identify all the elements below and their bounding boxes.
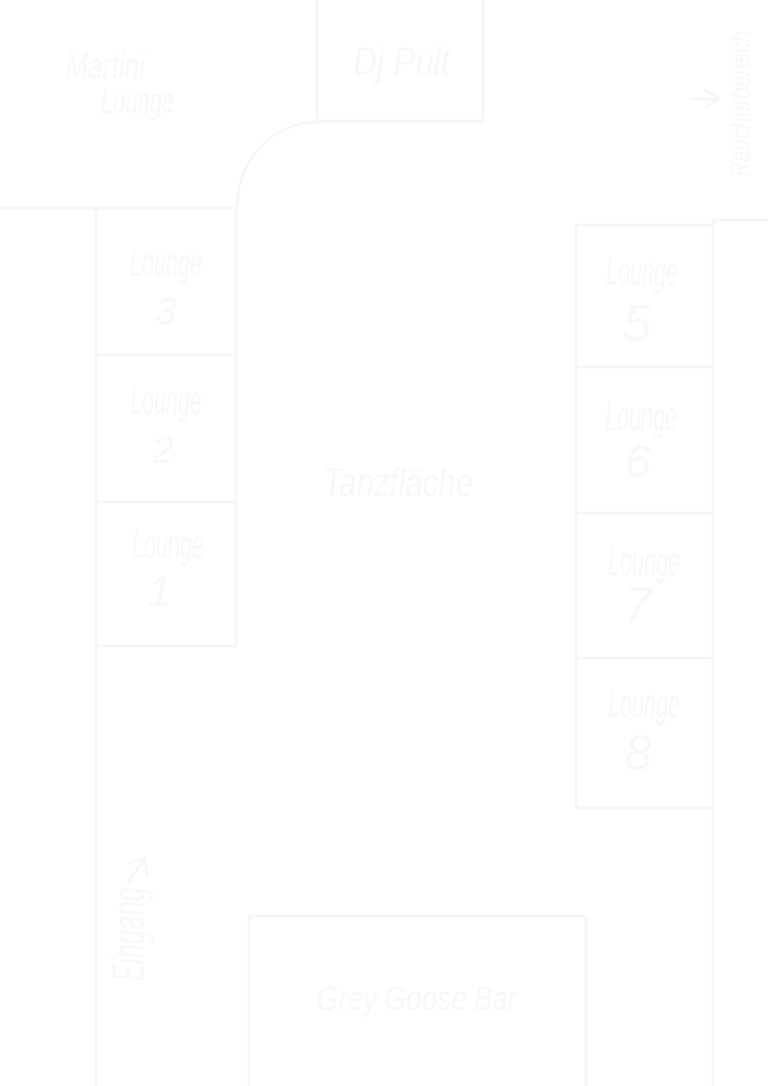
svg-text:Lounge: Lounge [132,523,204,567]
svg-text:Lounge: Lounge [130,379,202,423]
svg-text:1: 1 [148,567,172,616]
svg-text:7: 7 [624,577,654,633]
svg-text:Lounge: Lounge [608,682,680,726]
svg-text:2: 2 [151,430,173,472]
svg-text:Tanzfläche: Tanzfläche [323,461,473,505]
svg-text:Raucherbereich: Raucherbereich [725,31,757,177]
svg-text:Lounge: Lounge [101,80,174,121]
svg-text:8: 8 [624,725,652,781]
svg-text:6: 6 [625,435,651,487]
svg-text:3: 3 [155,291,176,333]
svg-text:Lounge: Lounge [605,395,677,439]
svg-text:5: 5 [623,295,653,353]
svg-text:Dj Pult: Dj Pult [353,40,452,84]
svg-text:Eingang: Eingang [103,887,154,981]
svg-text:Grey Goose Bar: Grey Goose Bar [317,980,518,1018]
svg-text:Lounge: Lounge [606,250,678,294]
svg-text:Lounge: Lounge [130,241,202,285]
